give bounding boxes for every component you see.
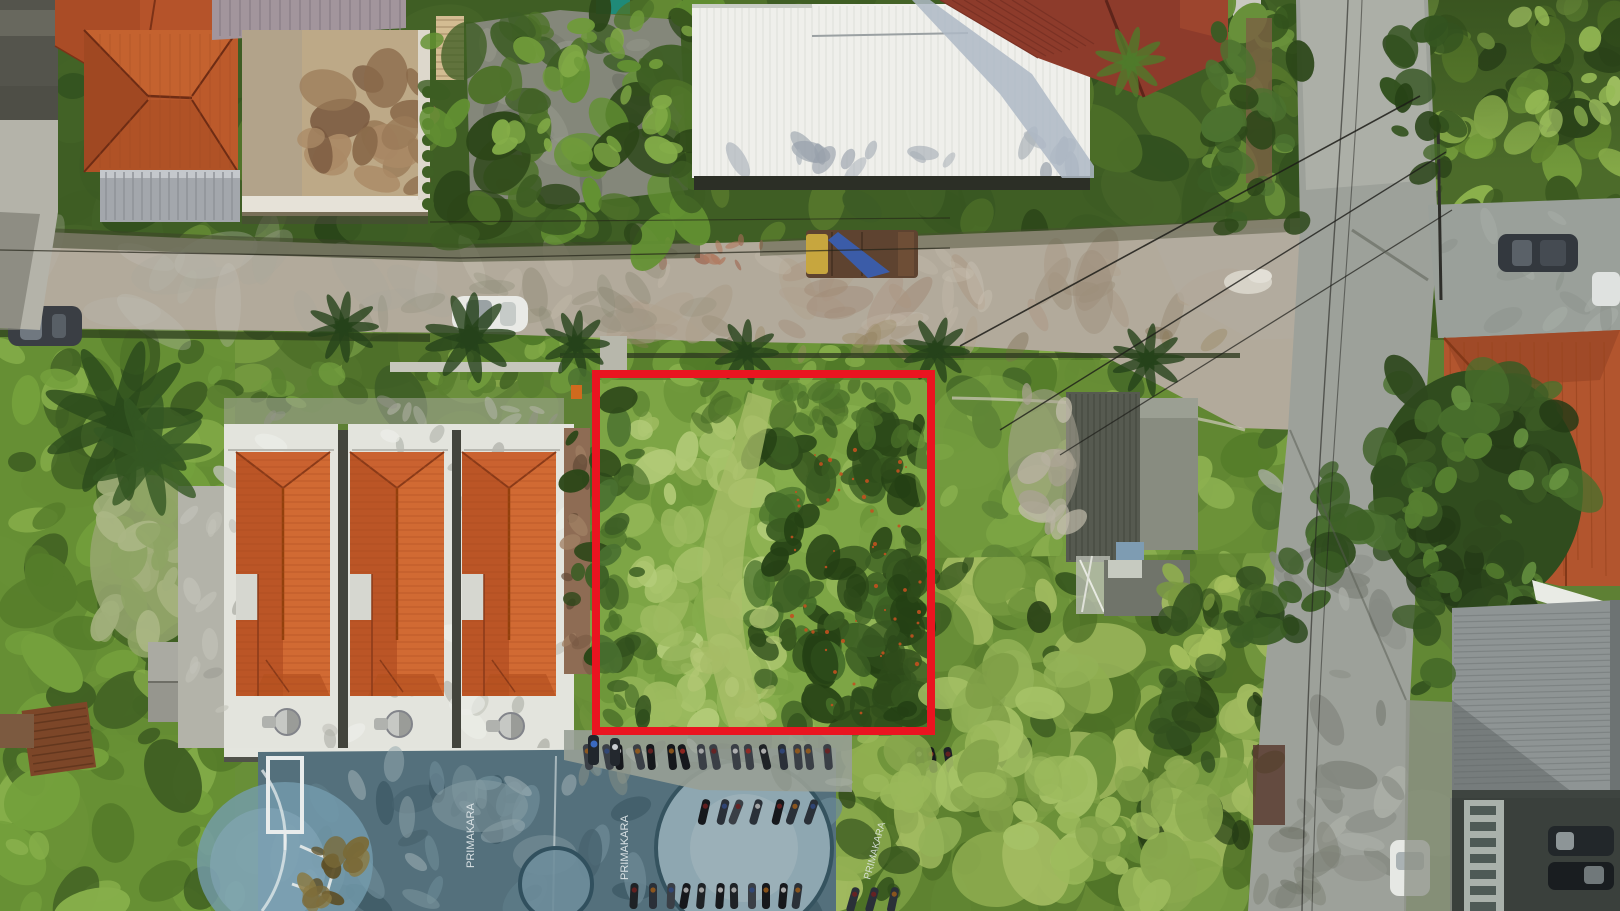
svg-text:PRIMAKARA: PRIMAKARA (465, 803, 477, 868)
svg-text:PRIMAKARA: PRIMAKARA (619, 815, 631, 880)
